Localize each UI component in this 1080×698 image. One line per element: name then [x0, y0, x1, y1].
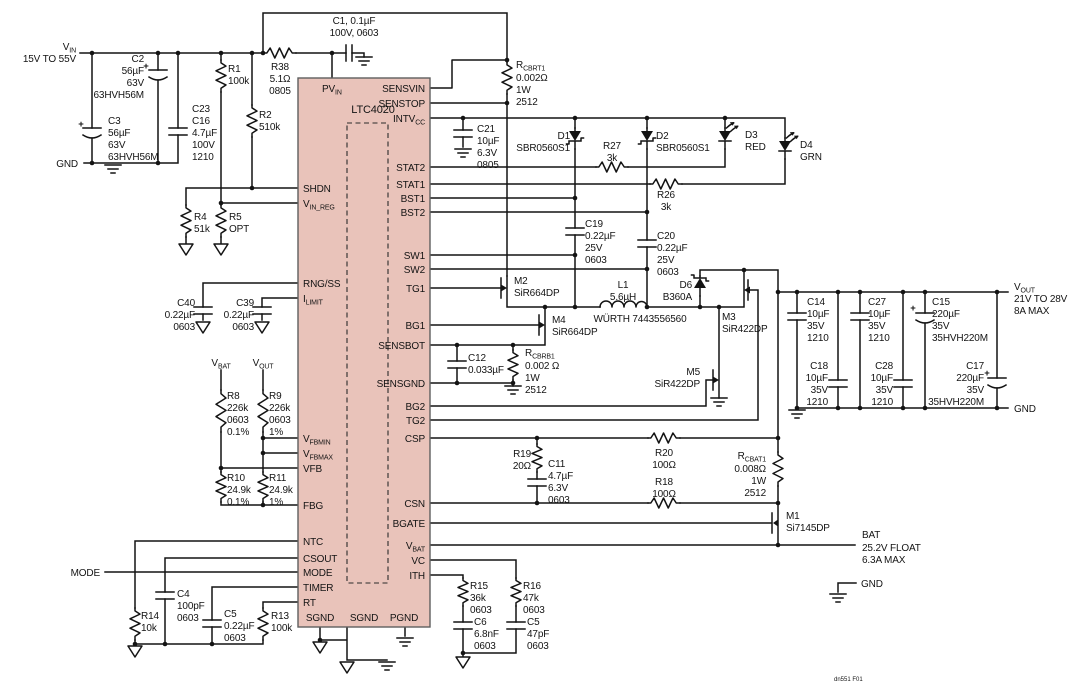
resistor-rcbrb1 [508, 350, 518, 380]
label-r2: R2510k [259, 110, 281, 133]
pin-label-vfb: VFB [303, 464, 322, 475]
resistor-r14 [130, 608, 140, 640]
label-m1: M1Si7145DP [786, 511, 830, 534]
pin-label-ith: ITH [409, 571, 425, 582]
pin-label-sgnd2: SGND [350, 613, 378, 624]
label-m5: M5SiR422DP [655, 367, 701, 390]
pin-label-bst2: BST2 [401, 208, 426, 219]
ic-ltc4020: LTC4020 PVIN SHDN VIN_REG RNG/SS ILIMIT … [298, 78, 430, 627]
pin-label-sw1: SW1 [404, 251, 426, 262]
capacitor-c11 [528, 479, 546, 486]
capacitor-c1 [346, 45, 352, 61]
label-r1: R1100k [228, 64, 250, 87]
label-r8: R8226k06030.1% [227, 391, 249, 438]
capacitor-c39 [253, 307, 271, 314]
pin-label-sensgnd: SENSGND [377, 379, 425, 390]
label-r38: R385.1Ω0805 [269, 62, 291, 97]
pin-label-vc: VC [411, 556, 425, 567]
label-c4: C4100pF0603 [177, 589, 205, 624]
label-r20: R20100Ω [652, 448, 676, 471]
label-r13: R13100k [271, 611, 293, 634]
polarity-plus-c2: + [143, 61, 149, 72]
terminal-vin: VIN [63, 42, 76, 55]
label-r18: R18100Ω [652, 477, 676, 500]
pin-label-stat1: STAT1 [396, 180, 425, 191]
label-r4: R451k [194, 212, 211, 235]
pin-label-csn: CSN [404, 499, 425, 510]
label-m2: M2SiR664DP [514, 276, 560, 299]
resistor-r11 [258, 472, 268, 502]
resistor-r19 [532, 444, 542, 472]
polarity-plus-c15: + [910, 303, 916, 314]
label-r19: R1920Ω [513, 449, 532, 472]
label-c28: C2810µF35V1210 [871, 361, 894, 408]
pin-label-stat2: STAT2 [396, 163, 425, 174]
label-c2: C256µF63V63HVH56M [94, 54, 145, 101]
resistor-r10 [216, 472, 226, 502]
terminal-vout-specs: 21V TO 28V8A MAX [1014, 294, 1068, 317]
resistor-r5 [216, 205, 226, 237]
capacitor-c28 [894, 380, 912, 387]
led-d4 [779, 132, 799, 159]
label-r27: R273k [603, 141, 621, 164]
capacitor-c27 [851, 313, 869, 320]
capacitor-c40 [194, 307, 212, 314]
terminal-gnd-battery: GND [861, 579, 883, 590]
pin-label-sensvin: SENSVIN [382, 84, 425, 95]
pin-label-bgate: BGATE [393, 519, 426, 530]
diode-d6 [692, 275, 709, 296]
pin-label-fbg: FBG [303, 501, 323, 512]
terminal-vin-range: 15V TO 55V [23, 54, 77, 65]
label-c17: C17220µF35V35HVH220M [928, 361, 984, 408]
label-c23: C23C164.7µF100V1210 [192, 104, 217, 163]
terminal-vbat-divider: VBAT [211, 358, 231, 371]
resistor-r20 [648, 433, 680, 443]
capacitor-c4 [156, 592, 174, 599]
label-c5: C50.22µF0603 [224, 609, 254, 644]
capacitor-c3 [83, 128, 101, 138]
pin-label-tg1: TG1 [406, 284, 426, 295]
label-c15: C15220µF35V35HVH220M [932, 297, 988, 344]
label-l1: L15.6µH [610, 280, 636, 303]
terminal-mode: MODE [71, 568, 101, 579]
label-c18: C1810µF35V1210 [806, 361, 829, 408]
label-l1-partnumber: WÜRTH 7443556560 [593, 313, 687, 325]
led-d3 [719, 122, 739, 149]
terminal-gnd-output: GND [1014, 404, 1036, 415]
pin-label-tg2: TG2 [406, 416, 426, 427]
label-m3: M3SiR422DP [722, 312, 768, 335]
label-c1: C1, 0.1µF100V, 0603 [330, 16, 379, 39]
pin-label-bg2: BG2 [405, 402, 425, 413]
resistor-r13 [258, 608, 268, 640]
label-r9: R9226k06031% [269, 391, 291, 438]
capacitor-c6 [454, 622, 472, 629]
label-rcbrb1-name: RCBRB1 [525, 348, 555, 361]
label-r11: R1124.9k1% [269, 473, 294, 508]
label-c19: C190.22µF25V0603 [585, 219, 615, 266]
polarity-plus-c3: + [78, 119, 84, 130]
label-c11: C114.7µF6.3V0603 [548, 459, 573, 506]
terminal-vout-divider: VOUT [253, 358, 275, 371]
capacitor-c12 [448, 361, 466, 368]
capacitor-c5 [203, 620, 221, 627]
label-rcbat1-name: RCBAT1 [738, 451, 767, 464]
label-c12: C120.033µF [468, 353, 504, 376]
label-rcbrt1-value: 0.002Ω1W2512 [516, 73, 548, 108]
label-r16: R1647k0603 [523, 581, 545, 616]
schematic-canvas: LTC4020 PVIN SHDN VIN_REG RNG/SS ILIMIT … [0, 0, 1080, 698]
label-rcbrt1-name: RCBRT1 [516, 60, 545, 73]
resistor-rcbrt1 [502, 62, 512, 94]
terminal-gnd-input: GND [56, 159, 78, 170]
capacitor-c18 [829, 380, 847, 387]
label-c20: C200.22µF25V0603 [657, 231, 687, 278]
pin-label-rngss: RNG/SS [303, 279, 341, 290]
resistor-r38 [264, 48, 296, 58]
label-d2: D2SBR0560S1 [656, 131, 710, 154]
pin-label-csout: CSOUT [303, 554, 337, 565]
resistor-r26 [650, 179, 682, 189]
label-c14: C1410µF35V1210 [807, 297, 829, 344]
figure-reference: dn551 F01 [834, 677, 863, 683]
resistor-r2 [247, 105, 257, 137]
capacitor-c17 [988, 378, 1006, 388]
resistor-rcbat1 [773, 452, 783, 486]
terminal-bat: BAT [862, 530, 880, 541]
label-c27: C2710µF35V1210 [868, 297, 890, 344]
pin-label-ntc: NTC [303, 537, 323, 548]
capacitor-c23 [169, 128, 187, 135]
schematic-page: LTC4020 PVIN SHDN VIN_REG RNG/SS ILIMIT … [0, 0, 1080, 698]
capacitor-c2 [149, 70, 167, 80]
resistor-r8 [216, 390, 226, 432]
label-c21: C2110µF6.3V0805 [477, 124, 499, 171]
capacitor-c20 [638, 240, 656, 247]
capacitor-c19 [566, 228, 584, 235]
terminal-bat-specs: 25.2V FLOAT6.3A MAX [862, 543, 921, 566]
pin-label-bst1: BST1 [401, 194, 426, 205]
label-r14: R1410k [141, 611, 159, 634]
resistor-r1 [216, 60, 226, 92]
label-rcbat1-value: 0.008Ω1W2512 [734, 464, 766, 499]
resistor-r16 [511, 578, 521, 606]
capacitor-c21 [454, 130, 472, 137]
label-d4: D4GRN [800, 140, 822, 163]
pin-label-mode: MODE [303, 568, 333, 579]
pin-label-pgnd: PGND [390, 613, 418, 624]
label-d6: D6B360A [663, 280, 693, 303]
label-c39: C390.22µF0603 [224, 298, 255, 333]
label-r10: R1024.9k0.1% [227, 473, 252, 508]
component-labels: R1100k R2510k R451k R5OPT R385.1Ω0805 C1… [78, 16, 990, 652]
label-c5b: C547pF0603 [527, 617, 549, 652]
label-rcbrb1-value: 0.002 Ω1W2512 [525, 361, 560, 396]
capacitor-c5b [507, 622, 525, 629]
diode-d2 [639, 128, 656, 149]
pin-label-bg1: BG1 [405, 321, 425, 332]
label-r5: R5OPT [229, 212, 249, 235]
pin-label-timer: TIMER [303, 583, 333, 594]
capacitor-c14 [788, 313, 806, 320]
label-c40: C400.22µF0603 [165, 298, 196, 333]
label-r26: R263k [657, 190, 675, 213]
resistor-r4 [181, 205, 191, 237]
label-m4: M4SiR664DP [552, 315, 598, 338]
polarity-plus-c17: + [984, 368, 990, 379]
label-r15: R1536k0603 [470, 581, 492, 616]
pin-label-csp: CSP [405, 434, 426, 445]
label-c3: C356µF63V63HVH56M [108, 116, 159, 163]
pin-label-sensbot: SENSBOT [378, 341, 425, 352]
pin-label-shdn: SHDN [303, 184, 331, 195]
label-d3: D3RED [745, 130, 766, 153]
pin-label-rt: RT [303, 598, 316, 609]
resistor-r9 [258, 390, 268, 432]
label-c6: C66.8nF0603 [474, 617, 499, 652]
pin-label-sgnd1: SGND [306, 613, 334, 624]
pin-label-senstop: SENSTOP [378, 99, 425, 110]
wire-power-stage [430, 270, 855, 656]
label-d1: D1SBR0560S1 [516, 131, 570, 154]
pin-label-sw2: SW2 [404, 265, 426, 276]
resistor-r15 [458, 578, 468, 606]
terminal-vout: VOUT [1014, 282, 1036, 295]
